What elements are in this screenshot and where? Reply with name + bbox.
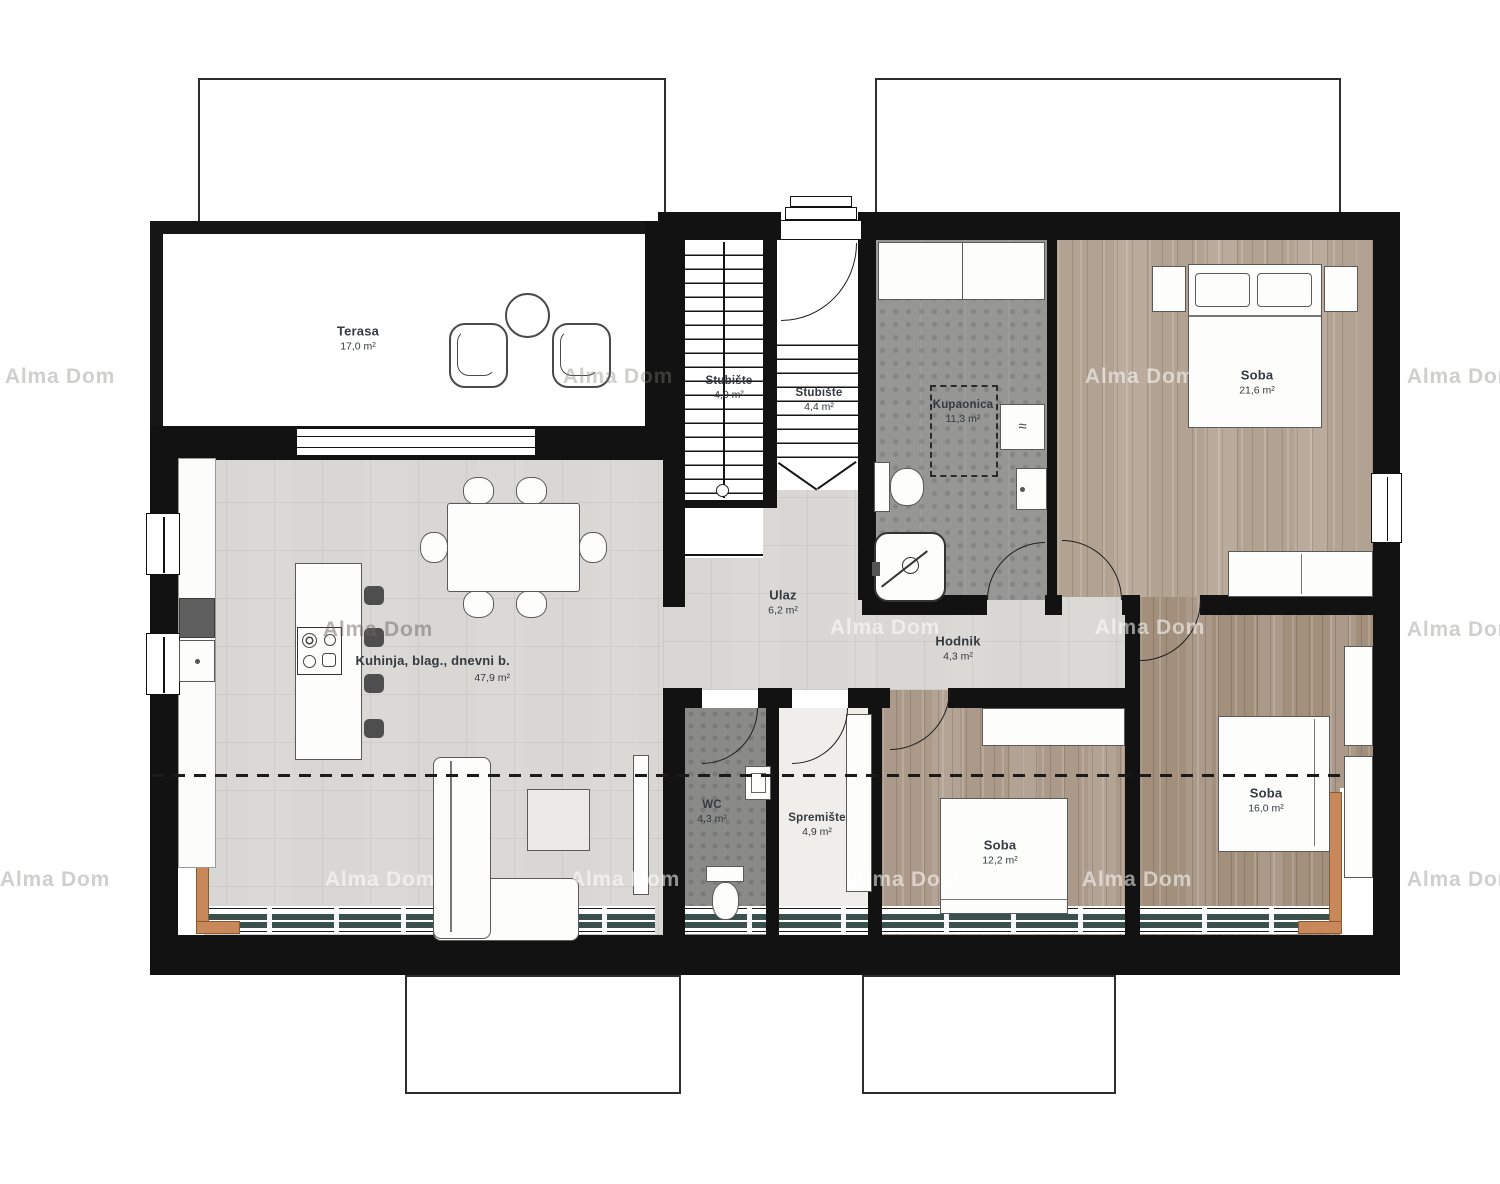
- railing-right: [1329, 792, 1342, 934]
- washer-icon: ≈: [1018, 418, 1026, 435]
- pillow-edge-line: [1314, 719, 1316, 846]
- wall-top-b: [858, 212, 1400, 240]
- wall-right: [1373, 212, 1400, 935]
- wall-hall-south-a: [663, 688, 702, 708]
- glass-wall-living: [205, 906, 655, 934]
- roof-slope-dashed-line: [152, 774, 1345, 777]
- nightstand-left: [1152, 266, 1186, 312]
- wall-hall-south-c: [848, 688, 890, 708]
- room-label-spremiste: Spremište 4,9 m²: [788, 812, 845, 838]
- stair-landing-edge: [685, 554, 763, 556]
- wall-bedroom2-bedroom3: [1125, 597, 1140, 935]
- desk-bedroom-2: [982, 708, 1125, 746]
- bathroom-cabinet-2: [962, 242, 1045, 300]
- bed-bedroom-3: [1218, 716, 1330, 852]
- dining-chair: [463, 477, 494, 505]
- terrace-chair-right: [552, 323, 611, 388]
- window-mullion: [163, 517, 165, 573]
- blanket-fold-line: [1189, 315, 1321, 317]
- sink-drain: [195, 659, 200, 664]
- room-label-soba-3: Soba 16,0 m²: [1248, 786, 1284, 815]
- bar-stool: [364, 586, 384, 605]
- sofa: [433, 757, 491, 939]
- window-left-2: [146, 633, 180, 695]
- toilet-bowl: [890, 468, 924, 506]
- coffee-table: [527, 789, 590, 851]
- sofa-back-line: [450, 761, 452, 932]
- watermark: Alma Dom: [1407, 365, 1500, 389]
- bathroom-door-leaf: [1016, 468, 1047, 510]
- floor-kitchen-living: [178, 456, 663, 935]
- chair-cushion: [457, 330, 496, 376]
- watermark: Alma Dom: [5, 365, 115, 389]
- blanket-fold-line: [941, 899, 1067, 901]
- kitchen-appliance: [179, 598, 215, 638]
- terrace-table: [505, 293, 550, 338]
- room-label-kuhinja: Kuhinja, blag., dnevni b. 47,9 m²: [440, 652, 510, 684]
- wall-living-wc: [663, 688, 685, 935]
- wall-hall-north-b: [1045, 595, 1062, 615]
- room-label-ulaz: Ulaz 6,2 m²: [768, 588, 798, 617]
- watermark: Alma Dom: [1407, 868, 1500, 892]
- wardrobe-bedroom-1: [1228, 551, 1373, 597]
- roof-outline-bottom-left: [405, 975, 681, 1094]
- dining-chair: [516, 477, 547, 505]
- burner-icon: [322, 653, 336, 667]
- wall-hall-north-c: [1122, 595, 1140, 615]
- room-label-kupaonica: Kupaonica 11,3 m²: [933, 399, 994, 425]
- toilet-tank: [874, 462, 890, 512]
- closet-bedroom-3b: [1344, 756, 1373, 878]
- roof-outline-top-right: [875, 78, 1341, 232]
- wall-wc-storage: [766, 708, 779, 935]
- cooktop: [297, 627, 342, 675]
- shower-faucet: [872, 562, 880, 576]
- dining-chair: [463, 590, 494, 618]
- wall-living-stairs: [663, 240, 685, 607]
- wc-toilet-bowl: [712, 882, 739, 920]
- room-label-stubiste-1: Stubište 4,0 m²: [706, 375, 753, 401]
- wc-toilet-tank: [706, 866, 744, 882]
- wall-left: [150, 426, 178, 975]
- watermark: Alma Dom: [1407, 618, 1500, 642]
- wall-hall-south-d: [948, 688, 1125, 708]
- roof-outline-top-left: [198, 78, 666, 232]
- closet-bedroom-3a: [1344, 646, 1373, 746]
- entrance-step-3: [780, 220, 862, 240]
- wall-bathroom-bedroom1: [1047, 240, 1057, 597]
- room-label-terasa: Terasa 17,0 m²: [337, 324, 379, 353]
- window-right: [1371, 473, 1402, 543]
- kitchen-sink: [179, 640, 215, 682]
- terrace-chair-left: [449, 323, 508, 388]
- bathroom-cabinet-1: [878, 242, 963, 300]
- stair-center-rail: [723, 242, 725, 498]
- dining-chair: [579, 532, 607, 563]
- bed-double: [1188, 264, 1322, 428]
- watermark: Alma Dom: [0, 868, 110, 892]
- storage-shelf: [846, 714, 872, 892]
- glass-wall-storage: [779, 906, 868, 934]
- wc-sink: [745, 766, 771, 800]
- burner-icon: [324, 634, 336, 646]
- nightstand-right: [1324, 266, 1358, 312]
- burner-icon: [302, 633, 317, 648]
- wall-hall-north-d: [1200, 595, 1373, 615]
- dining-chair: [420, 532, 448, 563]
- shower-line: [881, 550, 928, 587]
- room-label-hodnik: Hodnik 4,3 m²: [935, 634, 980, 663]
- chair-cushion: [560, 330, 599, 376]
- window-mullion: [163, 637, 165, 693]
- bar-stool: [364, 628, 384, 647]
- pillow: [1257, 273, 1312, 307]
- wall-hall-south-b: [758, 688, 792, 708]
- wall-between-stairs: [763, 240, 777, 508]
- floor-plan: ≈ Terasa 17,0 m² Stubište 4,0 m² Stubišt…: [0, 0, 1500, 1184]
- wall-bottom: [150, 935, 1400, 975]
- pillow: [1195, 273, 1250, 307]
- room-label-soba-1: Soba 21,6 m²: [1239, 368, 1275, 397]
- stair-landing-wall: [685, 500, 763, 508]
- stair-start-marker: [716, 484, 729, 497]
- window-left-1: [146, 513, 180, 575]
- washing-machine: ≈: [1000, 404, 1045, 450]
- window-mullion: [1387, 477, 1389, 541]
- bar-stool: [364, 674, 384, 693]
- dining-table: [447, 503, 580, 592]
- wardrobe-divider: [1301, 554, 1303, 594]
- dining-chair: [516, 590, 547, 618]
- burner-icon: [303, 655, 316, 668]
- window-terrace-band: [296, 428, 536, 456]
- entrance-step-2: [785, 207, 857, 220]
- roof-outline-bottom-right: [862, 975, 1116, 1094]
- shower-tray: [874, 532, 946, 602]
- room-label-soba-2: Soba 12,2 m²: [982, 838, 1018, 867]
- room-label-wc: WC 4,3 m²: [697, 799, 727, 825]
- door-handle: [1020, 487, 1025, 492]
- bar-stool: [364, 719, 384, 738]
- entrance-step-1: [790, 196, 852, 207]
- room-label-stubiste-2: Stubište 4,4 m²: [796, 387, 843, 413]
- railing-right-corner: [1298, 921, 1342, 934]
- railing-left-corner: [196, 921, 240, 934]
